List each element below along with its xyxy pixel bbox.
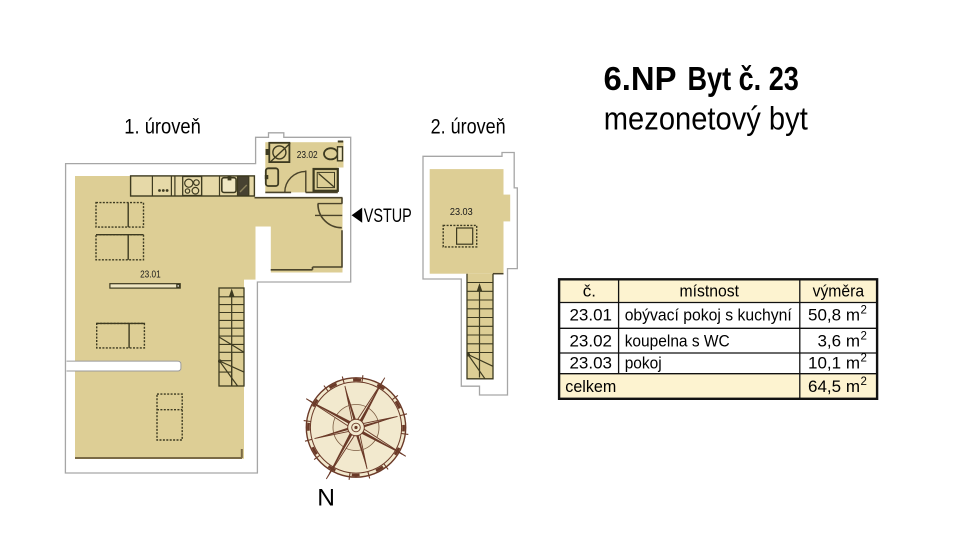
- svg-text:N: N: [317, 485, 335, 512]
- svg-text:2: 2: [861, 330, 867, 342]
- svg-text:Byt č. 23: Byt č. 23: [688, 60, 799, 97]
- svg-text:výměra: výměra: [813, 281, 865, 300]
- svg-text:pokoj: pokoj: [625, 354, 662, 373]
- svg-text:obývací pokoj s kuchyní: obývací pokoj s kuchyní: [625, 306, 792, 325]
- svg-text:50,8 m: 50,8 m: [808, 306, 860, 325]
- svg-text:64,5 m: 64,5 m: [808, 377, 860, 396]
- svg-text:3,6 m: 3,6 m: [817, 331, 860, 350]
- svg-text:1. úroveň: 1. úroveň: [124, 115, 201, 139]
- svg-text:místnost: místnost: [680, 281, 740, 300]
- svg-text:23.01: 23.01: [140, 268, 161, 280]
- svg-text:2: 2: [861, 376, 867, 388]
- svg-text:6.NP: 6.NP: [604, 60, 677, 97]
- svg-text:2: 2: [861, 305, 867, 317]
- svg-text:koupelna s WC: koupelna s WC: [625, 331, 730, 350]
- svg-text:VSTUP: VSTUP: [364, 206, 412, 227]
- svg-text:23.02: 23.02: [569, 331, 612, 350]
- svg-text:2. úroveň: 2. úroveň: [431, 115, 506, 139]
- svg-text:2: 2: [861, 353, 867, 365]
- svg-text:mezonetový byt: mezonetový byt: [604, 101, 808, 137]
- svg-text:celkem: celkem: [565, 377, 616, 396]
- svg-text:23.03: 23.03: [569, 354, 612, 373]
- svg-text:č.: č.: [583, 281, 596, 300]
- svg-text:23.03: 23.03: [450, 206, 473, 218]
- svg-text:23.01: 23.01: [569, 306, 612, 325]
- svg-text:10,1 m: 10,1 m: [808, 354, 860, 373]
- svg-text:23.02: 23.02: [297, 149, 318, 161]
